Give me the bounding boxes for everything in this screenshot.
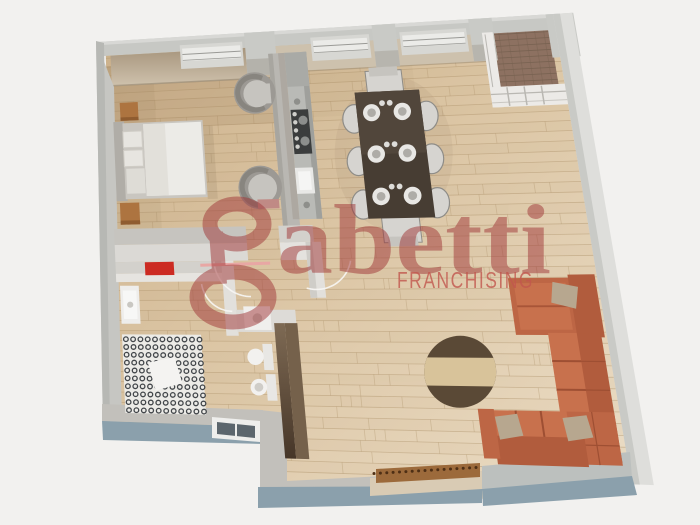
svg-text:FRANCHISING: FRANCHISING — [397, 267, 534, 293]
